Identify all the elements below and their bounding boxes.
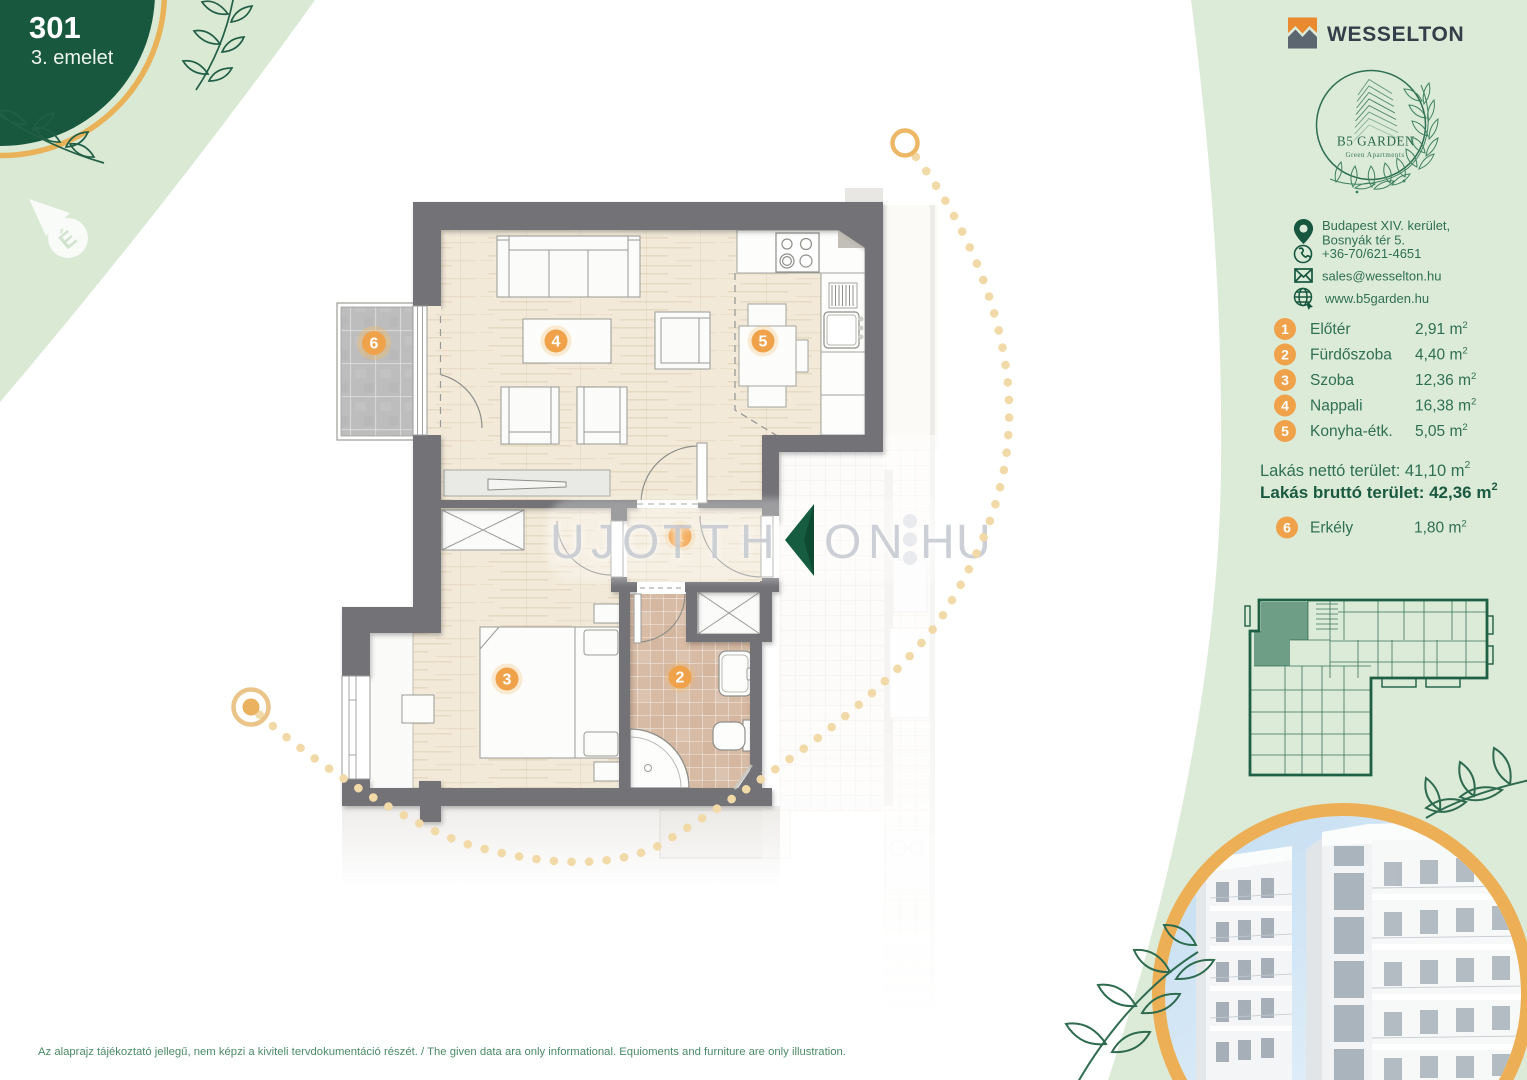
svg-text:3: 3 <box>503 672 512 689</box>
svg-text:Erkély: Erkély <box>1310 520 1353 537</box>
svg-text:1,80 m2: 1,80 m2 <box>1414 519 1467 537</box>
svg-text:6: 6 <box>370 336 379 353</box>
svg-text:Lakás bruttó terület: 42,36 m2: Lakás bruttó terület: 42,36 m2 <box>1260 481 1498 502</box>
svg-text:H: H <box>920 516 955 569</box>
svg-text:Lakás nettó terület: 41,10 m2: Lakás nettó terület: 41,10 m2 <box>1260 459 1471 480</box>
svg-text:5: 5 <box>1281 423 1289 439</box>
svg-text:5: 5 <box>759 334 768 351</box>
svg-text:Fürdőszoba: Fürdőszoba <box>1310 347 1392 364</box>
svg-text:Az alaprajz tájékoztató jelleg: Az alaprajz tájékoztató jellegű, nem kép… <box>38 1046 846 1058</box>
svg-text:5,05 m2: 5,05 m2 <box>1415 422 1468 440</box>
svg-text:U: U <box>550 516 585 569</box>
svg-text:4: 4 <box>552 334 561 351</box>
svg-text:T: T <box>663 516 692 569</box>
svg-text:Szoba: Szoba <box>1310 372 1354 389</box>
svg-text:Nappali: Nappali <box>1310 398 1363 415</box>
svg-text:+36-70/621-4651: +36-70/621-4651 <box>1322 246 1421 261</box>
svg-text:H: H <box>740 516 775 569</box>
svg-text:J: J <box>591 516 615 569</box>
svg-text:4: 4 <box>1281 398 1289 414</box>
svg-text:2: 2 <box>676 670 685 687</box>
svg-text:2: 2 <box>1281 347 1289 363</box>
svg-text:16,38 m2: 16,38 m2 <box>1415 397 1476 415</box>
svg-text:B5 GARDEN: B5 GARDEN <box>1337 134 1415 149</box>
svg-text:WESSELTON: WESSELTON <box>1327 23 1464 46</box>
svg-text:Konyha-étk.: Konyha-étk. <box>1310 423 1393 440</box>
svg-text:T: T <box>700 516 729 569</box>
svg-text:301: 301 <box>29 10 81 45</box>
svg-text:Előtér: Előtér <box>1310 321 1351 338</box>
svg-text:12,36 m2: 12,36 m2 <box>1415 371 1476 389</box>
svg-text:3. emelet: 3. emelet <box>31 47 114 69</box>
svg-text:O: O <box>622 516 659 569</box>
svg-text:Green Apartments: Green Apartments <box>1345 151 1404 159</box>
svg-text:1: 1 <box>1281 321 1289 337</box>
svg-text:3: 3 <box>1281 372 1289 388</box>
svg-text:www.b5garden.hu: www.b5garden.hu <box>1324 291 1429 306</box>
svg-text:Budapest XIV. kerület,: Budapest XIV. kerület, <box>1322 218 1450 233</box>
svg-text:sales@wesselton.hu: sales@wesselton.hu <box>1322 269 1441 284</box>
svg-text:N: N <box>868 516 903 569</box>
svg-text:2,91 m2: 2,91 m2 <box>1415 320 1468 338</box>
svg-text:U: U <box>956 516 991 569</box>
svg-text:O: O <box>824 516 861 569</box>
svg-text:6: 6 <box>1283 520 1291 536</box>
svg-text:4,40 m2: 4,40 m2 <box>1415 346 1468 364</box>
